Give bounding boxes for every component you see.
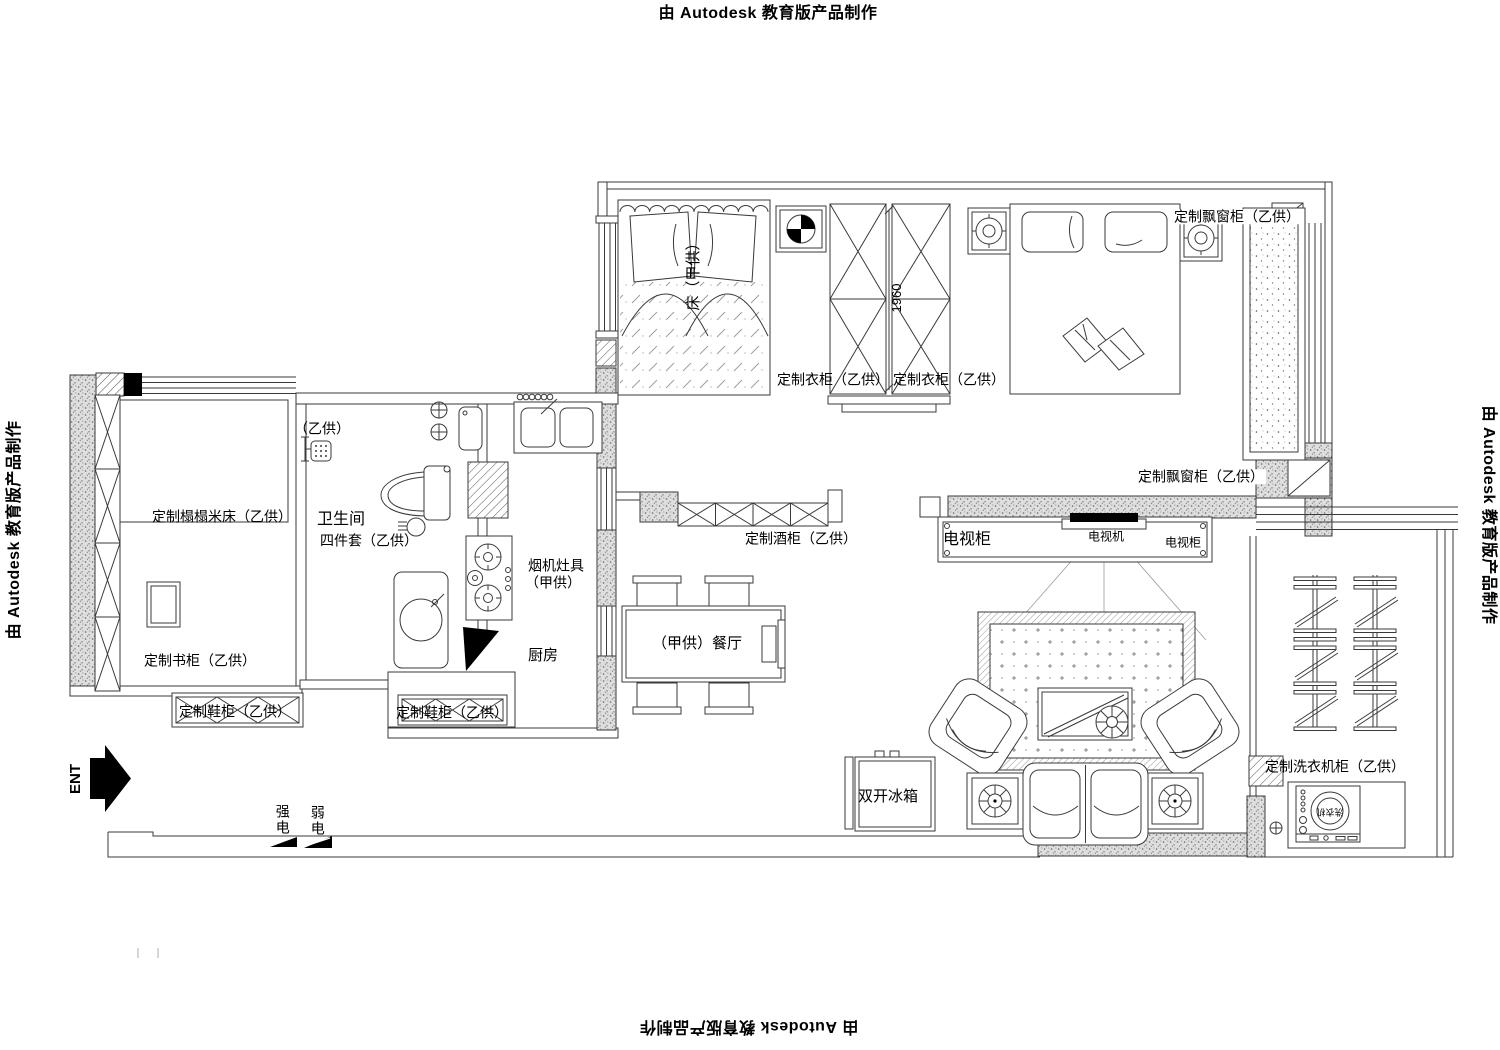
sofa-symbol <box>1023 763 1148 845</box>
door-swing-symbol <box>463 627 499 671</box>
tv-cabinet-small-label: 电视柜 <box>1165 536 1201 549</box>
shoe-cabinet-hall-label: 定制鞋柜（乙供） <box>396 705 508 720</box>
coffee-table-symbol <box>1038 688 1132 740</box>
bay-window-top-label: 定制飘窗柜（乙供） <box>1172 209 1302 224</box>
bath-four-piece-label: 四件套（乙供） <box>320 533 418 548</box>
cad-floorplan-screenshot: 由 Autodesk 教育版产品制作 由 Autodesk 教育版产品制作 由 … <box>0 0 1500 1050</box>
tatami-room <box>95 395 303 727</box>
bathroom-label: 卫生间 <box>317 511 365 529</box>
toilet-symbol <box>381 466 450 520</box>
living-room <box>845 612 1245 845</box>
stove-symbol <box>466 536 512 620</box>
watermark-right: 由 Autodesk 教育版产品制作 <box>1479 406 1497 625</box>
washer-label: 洗衣机 <box>1316 806 1343 816</box>
bookcase-label: 定制书柜（乙供） <box>144 653 256 668</box>
wardrobe-column-symbol <box>95 395 120 691</box>
boundary-band <box>108 832 1040 857</box>
bay-window-mid-label: 定制飘窗柜（乙供） <box>1136 469 1266 484</box>
tatami-window <box>142 377 296 394</box>
double-bed-symbol-2 <box>1010 204 1180 394</box>
shoe-cabinet-left-label: 定制鞋柜（乙供） <box>179 704 291 719</box>
dimension-1960-label: 1960 <box>890 284 904 313</box>
shower-set-label: （乙供） <box>294 421 350 436</box>
tatami-bed-label: 定制榻榻米床（乙供） <box>152 509 292 524</box>
shower-symbol <box>301 437 331 461</box>
faucet-symbols <box>431 402 447 440</box>
tv-cabinet-main-label: 电视柜 <box>943 531 991 549</box>
kitchen-sink-symbol <box>514 394 602 453</box>
kitchen-label: 厨房 <box>528 648 558 665</box>
second-bedroom <box>968 204 1305 460</box>
mop-sink-symbol <box>394 572 448 668</box>
floor-plan-drawing <box>0 0 1500 1050</box>
nightstand-symbol <box>776 206 826 252</box>
wine-cabinet-symbol <box>678 503 828 526</box>
watermark-top: 由 Autodesk 教育版产品制作 <box>659 5 878 23</box>
counter-hatch <box>468 462 508 518</box>
wine-cabinet-label: 定制酒柜（乙供） <box>745 531 857 546</box>
entry-arrow <box>90 745 131 812</box>
weak-power-label: 弱电 <box>309 805 324 837</box>
watermark-bottom: 由 Autodesk 教育版产品制作 <box>640 1017 859 1035</box>
wardrobe-right-label: 定制衣柜（乙供） <box>893 372 1005 387</box>
side-table-right <box>1147 773 1203 829</box>
watermark-left: 由 Autodesk 教育版产品制作 <box>6 421 24 640</box>
bedroom-window-right <box>1309 223 1321 443</box>
fridge-label: 双开冰箱 <box>858 789 918 806</box>
entry-label: ENT <box>68 764 85 794</box>
strong-power-label: 强电 <box>274 804 289 836</box>
drying-rack-left <box>1294 575 1338 731</box>
water-heater-symbol <box>459 407 482 450</box>
wardrobe-left-label: 定制衣柜（乙供） <box>777 372 889 387</box>
tatami-bed-symbol <box>120 400 288 522</box>
washer-cabinet-label: 定制洗衣机柜（乙供） <box>1265 759 1405 774</box>
bedroom-window-left <box>596 216 618 338</box>
drying-rack-right <box>1354 575 1398 731</box>
tv-screen <box>1070 513 1138 522</box>
bay-window-seat <box>1243 208 1305 460</box>
dining-label: （甲供）餐厅 <box>652 636 742 653</box>
side-table-left <box>967 773 1023 829</box>
wardrobe-left-symbol <box>830 204 886 394</box>
desk-symbol <box>147 582 180 627</box>
range-hood-label-1: 烟机灶具 <box>528 558 584 573</box>
tv-set-label: 电视机 <box>1088 530 1124 543</box>
range-hood-label-2: （甲供） <box>525 575 581 590</box>
main-bed-label: 床（甲供） <box>686 235 703 310</box>
